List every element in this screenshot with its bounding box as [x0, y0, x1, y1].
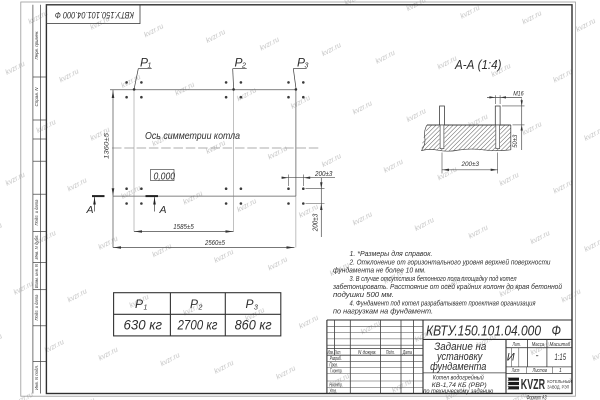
svg-text:Р: Р [135, 297, 143, 311]
svg-text:1360±5: 1360±5 [104, 132, 111, 159]
svg-text:Изм.: Изм. [328, 350, 334, 356]
svg-text:3. В случае отсутствия бетонно: 3. В случае отсутствия бетонного пола пл… [350, 275, 517, 283]
svg-text:ЗАВОД. РЭП: ЗАВОД. РЭП [547, 384, 569, 389]
svg-text:1585±5: 1585±5 [173, 224, 194, 231]
svg-text:200±3: 200±3 [313, 214, 320, 232]
svg-text:Листов: Листов [532, 368, 547, 374]
svg-text:Р: Р [190, 297, 198, 311]
svg-text:N докум.: N докум. [358, 350, 377, 356]
svg-text:3: 3 [254, 305, 258, 312]
svg-text:Н.контр.: Н.контр. [329, 383, 342, 389]
svg-text:1: 1 [144, 305, 148, 312]
svg-text:Перв. примен.: Перв. примен. [34, 31, 39, 60]
svg-text:Лист: Лист [511, 368, 519, 374]
svg-text:4. Фундамент под котел разраба: 4. Фундамент под котел разрабатывает про… [350, 299, 536, 307]
svg-text:КВТУ.150.101.04.000 Ф: КВТУ.150.101.04.000 Ф [55, 9, 134, 20]
svg-text:А-А (1:4): А-А (1:4) [454, 57, 501, 72]
svg-text:0,000: 0,000 [154, 170, 176, 182]
svg-text:1. *Размеры для справок.: 1. *Размеры для справок. [350, 250, 433, 258]
svg-text:по техническому заданию: по техническому заданию [423, 387, 493, 395]
svg-text:1: 1 [559, 368, 562, 374]
svg-text:И: И [507, 351, 515, 363]
svg-text:2560±5: 2560±5 [204, 240, 225, 247]
svg-text:А: А [86, 204, 94, 216]
svg-text:А: А [159, 204, 167, 216]
svg-text:1:15: 1:15 [555, 352, 567, 362]
svg-text:Утв.: Утв. [329, 389, 337, 395]
svg-text:Лит.: Лит. [512, 342, 521, 348]
svg-text:Т.контр.: Т.контр. [330, 368, 343, 374]
svg-text:200±3: 200±3 [314, 171, 332, 178]
svg-text:Формат А3: Формат А3 [527, 396, 547, 400]
svg-text:Подп.: Подп. [386, 350, 395, 356]
svg-text:фундамента: фундамента [430, 361, 486, 373]
svg-text:Масштаб: Масштаб [550, 342, 571, 348]
svg-text:Масса: Масса [532, 342, 544, 348]
svg-text:-: - [536, 351, 539, 361]
svg-text:2700 кг: 2700 кг [177, 318, 218, 333]
svg-text:630 кг: 630 кг [124, 318, 163, 333]
svg-text:Разраб.: Разраб. [330, 356, 342, 362]
svg-text:Пров.: Пров. [329, 362, 337, 368]
svg-text:КОТЕЛЬНЫЙ: КОТЕЛЬНЫЙ [547, 377, 572, 384]
svg-text:Подп. и дата: Подп. и дата [34, 199, 39, 225]
svg-text:2. Отклонение от горизонтально: 2. Отклонение от горизонтального уровня … [349, 258, 551, 266]
svg-text:фундамента не более 10 мм.: фундамента не более 10 мм. [333, 267, 426, 275]
svg-text:забетонировать. Расстояние от: забетонировать. Расстояние от осей крайн… [332, 283, 562, 291]
svg-text:КВТУ.150.101.04.000: КВТУ.150.101.04.000 [426, 323, 542, 340]
svg-text:Ось симметрии котла: Ось симметрии котла [145, 130, 240, 142]
svg-text:Взам. инв. N: Взам. инв. N [34, 263, 39, 288]
svg-text:Справ. N: Справ. N [34, 87, 39, 107]
svg-text:Подп. и дата: Подп. и дата [34, 294, 39, 320]
svg-text:50±3: 50±3 [512, 135, 519, 148]
svg-text:Р: Р [246, 297, 254, 311]
svg-text:KVZR: KVZR [521, 376, 545, 393]
svg-text:Лист: Лист [334, 350, 340, 356]
svg-text:2: 2 [198, 305, 203, 312]
svg-text:Ф: Ф [552, 323, 562, 340]
svg-text:200±3: 200±3 [461, 161, 480, 168]
svg-text:860 кг: 860 кг [235, 318, 272, 333]
svg-text:подушки 500 мм.: подушки 500 мм. [333, 291, 394, 299]
svg-text:Инв. N подл.: Инв. N подл. [34, 365, 39, 390]
svg-text:Инв. N дубл.: Инв. N дубл. [34, 235, 39, 260]
svg-text:Котел водогрейный: Котел водогрейный [433, 373, 484, 381]
svg-text:Дата: Дата [402, 350, 412, 356]
svg-text:по нагрузкам на фундамент.: по нагрузкам на фундамент. [333, 308, 433, 316]
svg-text:М16: М16 [513, 90, 524, 97]
